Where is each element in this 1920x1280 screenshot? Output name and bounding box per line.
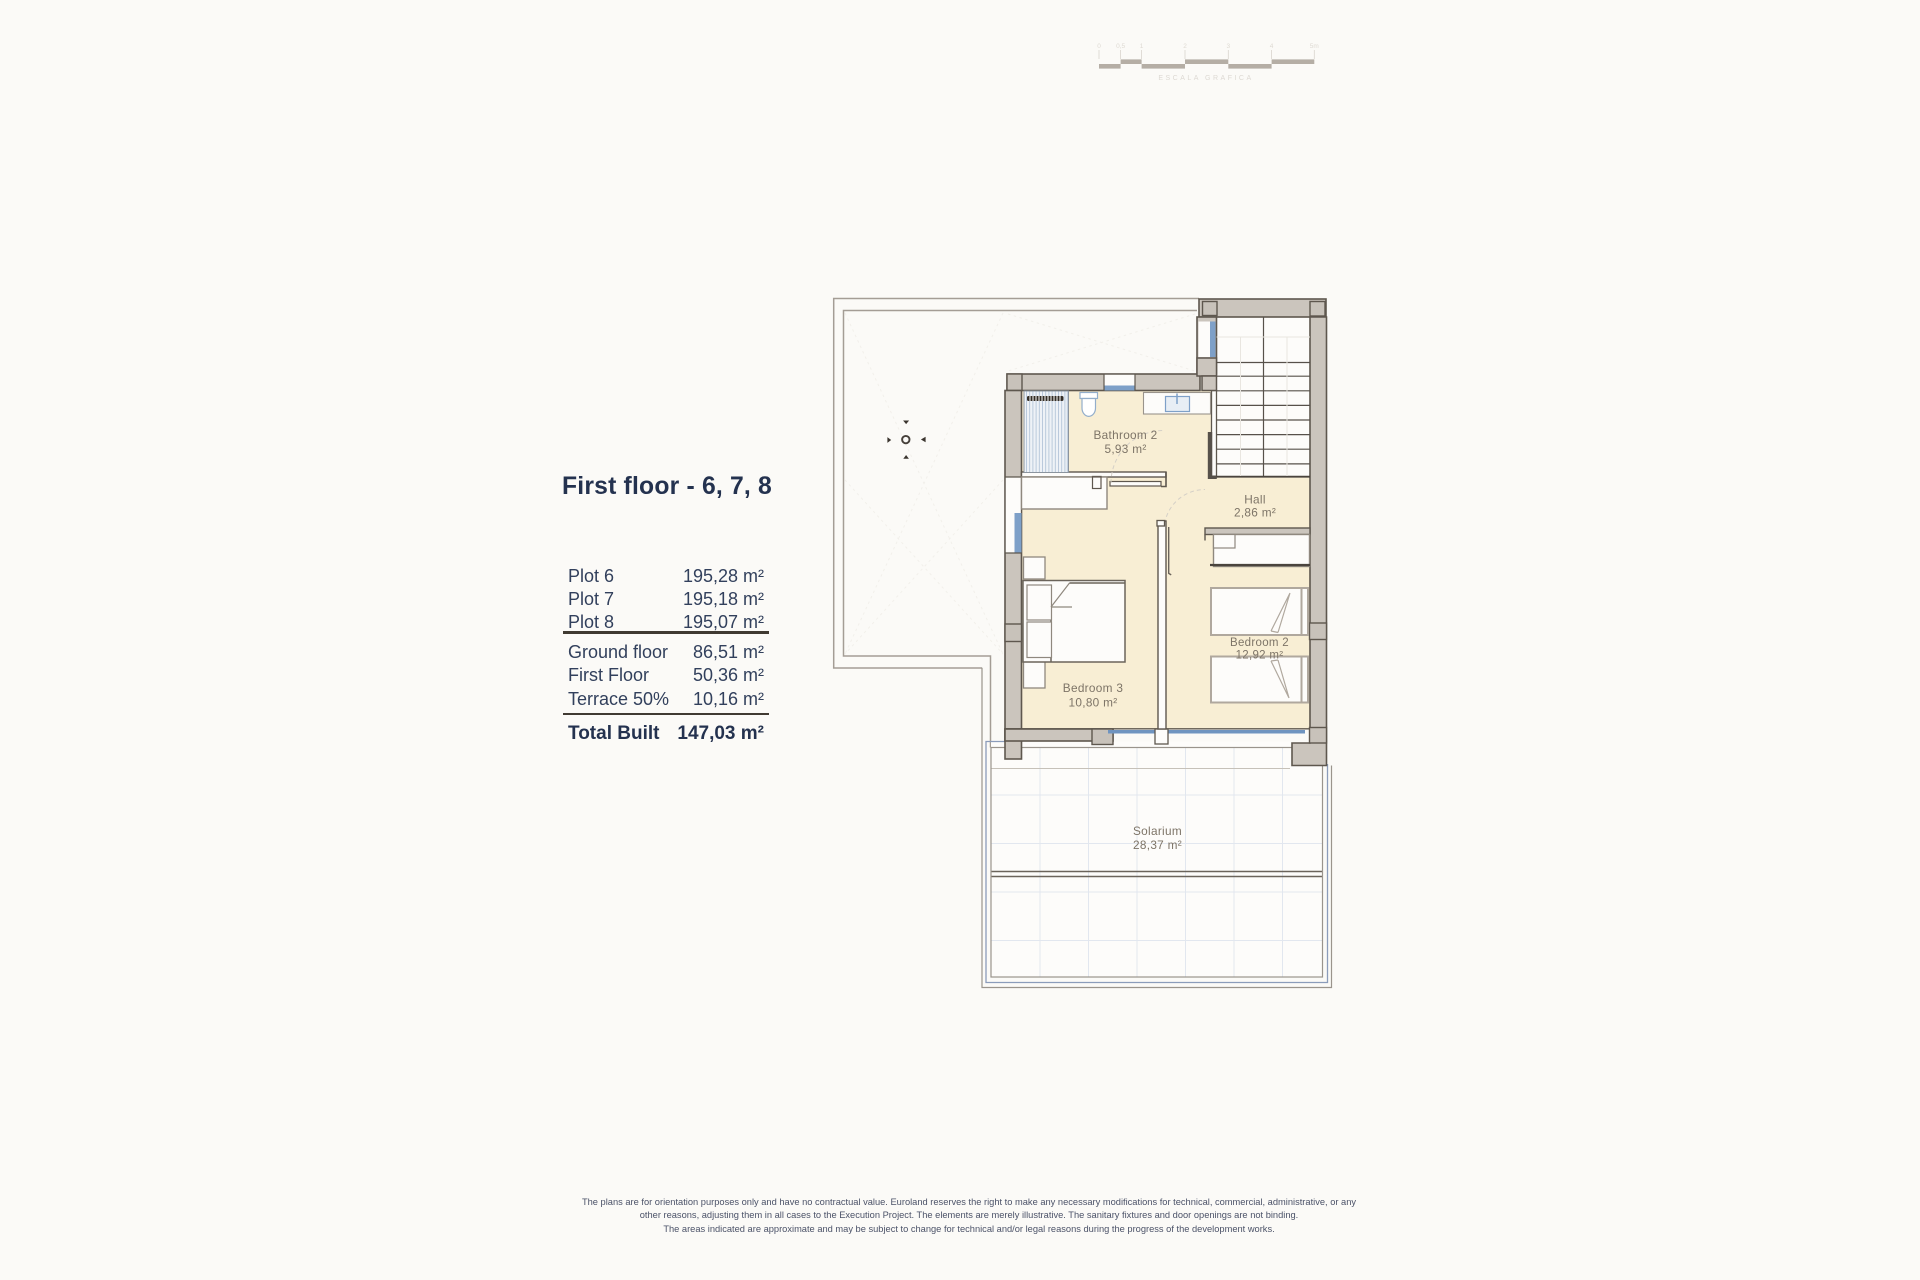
svg-text:12,92 m²: 12,92 m²: [1236, 650, 1284, 662]
svg-text:Hall: Hall: [1244, 493, 1266, 507]
svg-text:10,80 m²: 10,80 m²: [1069, 696, 1118, 710]
svg-text:ESCALA GRAFICA: ESCALA GRAFICA: [1158, 75, 1253, 82]
svg-text:0: 0: [1097, 43, 1101, 50]
svg-text:5,93 m²: 5,93 m²: [1104, 442, 1146, 456]
svg-text:2,86 m²: 2,86 m²: [1234, 506, 1276, 520]
svg-text:28,37 m²: 28,37 m²: [1133, 838, 1182, 852]
svg-text:Bedroom 2: Bedroom 2: [1230, 637, 1289, 649]
svg-text:1: 1: [1140, 43, 1144, 50]
svg-text:0,5: 0,5: [1116, 43, 1125, 50]
svg-text:Solarium: Solarium: [1133, 824, 1182, 838]
svg-text:Bathroom 2: Bathroom 2: [1094, 428, 1158, 442]
svg-text:3: 3: [1226, 43, 1230, 50]
svg-text:2: 2: [1183, 43, 1187, 50]
svg-text:4: 4: [1270, 43, 1274, 50]
svg-text:Bedroom 3: Bedroom 3: [1063, 681, 1124, 695]
svg-text:5m: 5m: [1310, 43, 1319, 50]
